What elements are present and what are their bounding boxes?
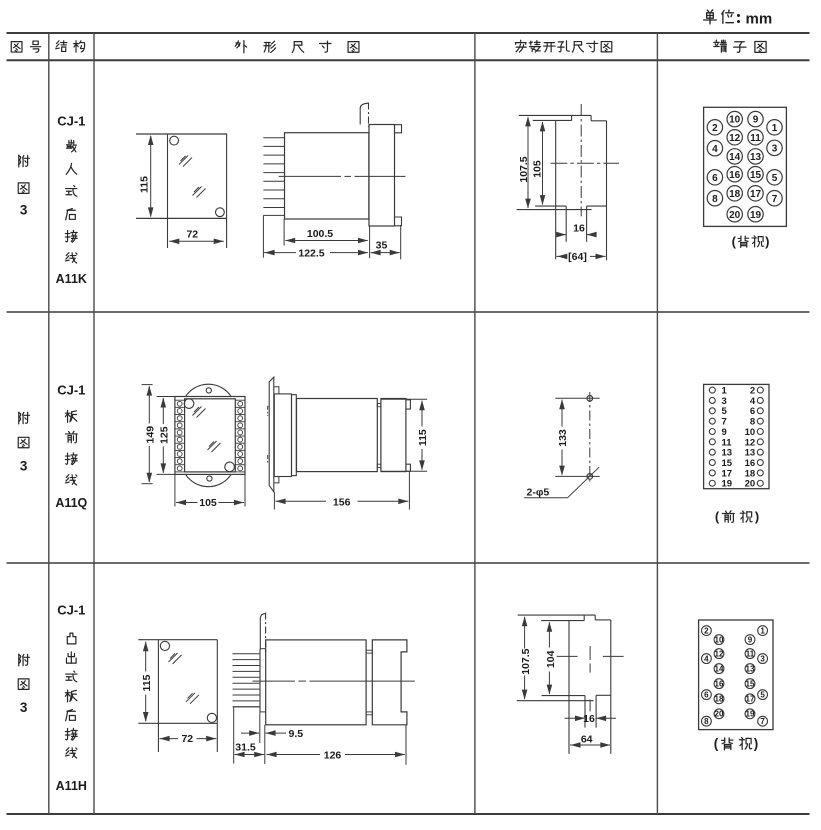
svg-text:20: 20: [715, 710, 724, 719]
svg-text:CJ-1: CJ-1: [57, 383, 85, 398]
svg-text:16: 16: [715, 680, 724, 689]
svg-text:115: 115: [417, 429, 429, 446]
svg-text:7: 7: [760, 717, 765, 726]
svg-text:17: 17: [722, 468, 733, 479]
svg-text:16: 16: [583, 713, 595, 725]
svg-text:19: 19: [722, 479, 733, 490]
svg-text:1: 1: [722, 386, 728, 397]
svg-text:149: 149: [144, 426, 156, 444]
svg-text:14: 14: [729, 152, 741, 163]
svg-text:107.5: 107.5: [520, 648, 532, 674]
svg-text:CJ-1: CJ-1: [57, 114, 85, 129]
svg-text:3: 3: [722, 396, 727, 407]
svg-text:1: 1: [760, 627, 765, 636]
svg-text:105: 105: [532, 160, 544, 178]
svg-text:122.5: 122.5: [298, 248, 324, 260]
svg-text:6: 6: [712, 173, 718, 184]
svg-text:10: 10: [715, 636, 724, 645]
svg-text:20: 20: [745, 479, 756, 490]
svg-text:(: (: [732, 234, 737, 249]
svg-text:CJ-1: CJ-1: [57, 603, 85, 618]
svg-text:14: 14: [715, 665, 724, 674]
svg-text:19: 19: [750, 210, 762, 221]
svg-text:7: 7: [772, 194, 778, 205]
svg-text:15: 15: [746, 680, 755, 689]
svg-text:31.5: 31.5: [235, 742, 256, 754]
svg-text:): ): [755, 509, 759, 524]
svg-text:9: 9: [753, 115, 759, 126]
svg-text:18: 18: [715, 695, 724, 704]
svg-text:A11H: A11H: [56, 779, 87, 793]
svg-text:11: 11: [750, 133, 761, 144]
svg-text:mm: mm: [746, 11, 773, 28]
svg-text:115: 115: [139, 176, 151, 193]
svg-text:35: 35: [376, 240, 388, 252]
svg-text:17: 17: [746, 695, 755, 704]
svg-text:4: 4: [704, 655, 709, 664]
svg-text:18: 18: [729, 189, 741, 200]
svg-text:3: 3: [20, 459, 28, 474]
svg-text:16: 16: [573, 223, 585, 235]
svg-text:2: 2: [704, 627, 709, 636]
svg-text:4: 4: [712, 144, 718, 155]
svg-text:A11Q: A11Q: [55, 496, 87, 510]
svg-text:2: 2: [750, 386, 755, 397]
svg-text:105: 105: [199, 497, 217, 509]
svg-text:5: 5: [722, 406, 728, 417]
svg-text:13: 13: [722, 448, 733, 459]
svg-text:107.5: 107.5: [518, 156, 530, 182]
svg-text:133: 133: [557, 429, 569, 447]
svg-text:8: 8: [712, 194, 718, 205]
svg-text:3: 3: [772, 144, 778, 155]
svg-text:10: 10: [729, 115, 741, 126]
svg-text:[64]: [64]: [568, 251, 587, 263]
svg-text:12: 12: [729, 133, 741, 144]
svg-text:7: 7: [722, 417, 727, 428]
svg-text:13: 13: [745, 448, 756, 459]
svg-text:20: 20: [729, 210, 741, 221]
svg-text:2-φ5: 2-φ5: [527, 487, 550, 499]
svg-text:9: 9: [722, 427, 727, 438]
svg-text:15: 15: [722, 458, 733, 469]
svg-text:11: 11: [722, 437, 733, 448]
svg-text:2: 2: [712, 123, 718, 134]
svg-text:126: 126: [324, 749, 342, 761]
svg-text:5: 5: [760, 691, 765, 700]
svg-text:): ): [754, 736, 759, 751]
svg-text:1: 1: [772, 123, 778, 134]
svg-text:156: 156: [333, 496, 351, 508]
svg-text:9.5: 9.5: [289, 728, 304, 740]
svg-text:115: 115: [141, 674, 153, 691]
svg-text:4: 4: [750, 396, 756, 407]
svg-text:6: 6: [704, 691, 709, 700]
svg-text:18: 18: [745, 468, 756, 479]
svg-text:11: 11: [746, 650, 755, 659]
svg-text:64: 64: [581, 734, 593, 746]
svg-text:125: 125: [158, 426, 170, 444]
svg-text:17: 17: [750, 189, 762, 200]
svg-text:72: 72: [186, 228, 198, 240]
svg-text:A11K: A11K: [56, 272, 87, 286]
svg-text:3: 3: [20, 203, 28, 218]
svg-text:8: 8: [750, 417, 755, 428]
svg-text:19: 19: [746, 710, 755, 719]
svg-text:104: 104: [545, 650, 557, 668]
svg-text:10: 10: [745, 427, 756, 438]
svg-text:8: 8: [704, 717, 709, 726]
svg-text:15: 15: [750, 170, 762, 181]
svg-text:16: 16: [745, 458, 756, 469]
svg-text:16: 16: [729, 170, 741, 181]
svg-text:72: 72: [181, 733, 193, 745]
svg-text:12: 12: [715, 650, 724, 659]
svg-text:3: 3: [20, 700, 28, 715]
svg-text:(: (: [715, 509, 720, 524]
svg-text:9: 9: [748, 636, 753, 645]
svg-text:12: 12: [745, 437, 756, 448]
svg-text:(: (: [714, 736, 719, 751]
svg-text:100.5: 100.5: [307, 228, 333, 240]
svg-text:6: 6: [750, 406, 755, 417]
svg-text:3: 3: [760, 655, 765, 664]
svg-text:5: 5: [772, 173, 778, 184]
svg-text:13: 13: [746, 665, 755, 674]
svg-text:): ): [765, 234, 769, 249]
svg-text:13: 13: [750, 152, 762, 163]
